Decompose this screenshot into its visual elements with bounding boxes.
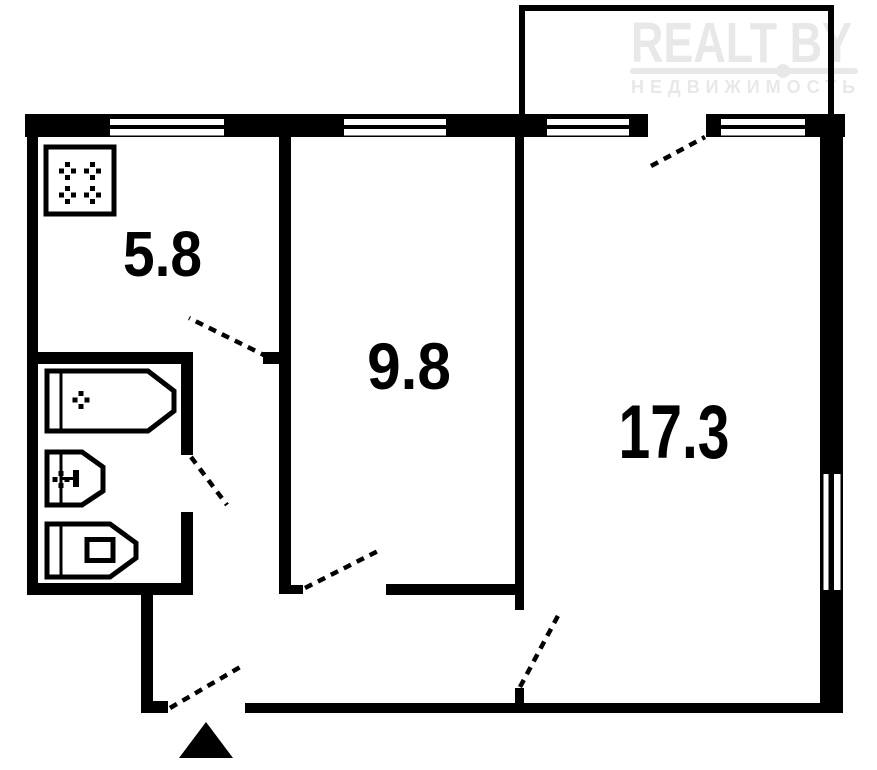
- svg-text:REALT BY: REALT BY: [631, 11, 852, 75]
- svg-text:5.8: 5.8: [123, 218, 202, 290]
- svg-text:17.3: 17.3: [618, 390, 729, 475]
- svg-text:9.8: 9.8: [367, 331, 451, 404]
- svg-text:НЕДВИЖИМОСТЬ: НЕДВИЖИМОСТЬ: [631, 77, 855, 97]
